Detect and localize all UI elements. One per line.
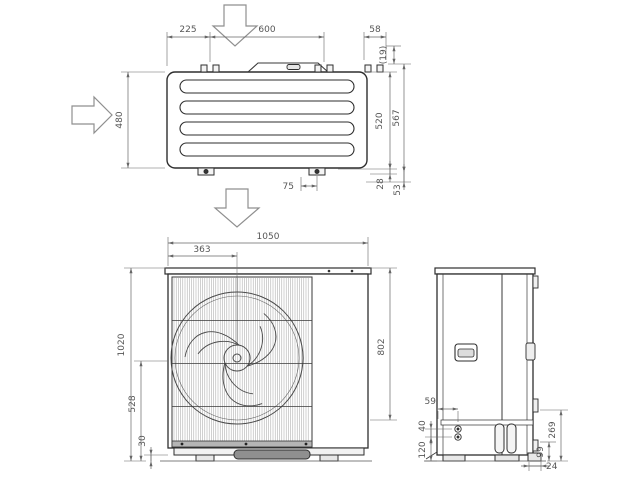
- dim-arrowhead-icon: [388, 415, 391, 420]
- dim-arrowhead-icon: [126, 163, 129, 168]
- cap-bolt: [328, 270, 331, 273]
- side-right-tabs: [533, 276, 538, 451]
- dim-foot-pitch-value: 600: [258, 25, 275, 35]
- dim-bottom-clearance-value: 120: [418, 441, 428, 458]
- dim-fan-center-value: 363: [193, 245, 210, 255]
- dim-arrowhead-icon: [364, 35, 369, 38]
- dim-foot-slot: 75: [283, 182, 317, 192]
- front-foot-left: [196, 455, 214, 461]
- dim-arrowhead-icon: [547, 456, 550, 461]
- dim-pipe-pitch-value: 40: [418, 420, 428, 432]
- dim-depth: 480: [115, 72, 130, 168]
- dim-arrowhead-icon: [232, 254, 237, 257]
- dim-depth-to-foot: 520: [375, 72, 392, 169]
- dim-bracket-width: 58: [364, 25, 386, 39]
- dim-width: 1050: [168, 232, 368, 245]
- airflow-down-arrow-top-icon: [213, 5, 257, 46]
- band-bolt: [305, 443, 308, 446]
- side-service-band: [441, 420, 533, 425]
- top-handle-detail: [287, 65, 300, 70]
- dim-valve-height-value: 269: [548, 421, 558, 438]
- side-view: [424, 268, 546, 461]
- airflow-right-arrow-icon: [72, 97, 112, 133]
- top-bottom-feet: [198, 168, 325, 175]
- dim-valve-height: 269: [548, 410, 563, 461]
- dim-arrowhead-icon: [402, 64, 405, 69]
- drawing-svg: 22560058(19)4805205672853751050363102052…: [0, 0, 640, 480]
- dim-rear-offset-value: (19): [379, 46, 389, 64]
- dim-arrowhead-icon: [205, 35, 210, 38]
- dim-arrowhead-icon: [167, 35, 172, 38]
- dim-foot-height-front: 30: [138, 435, 153, 469]
- dim-panel-height-value: 802: [377, 338, 387, 355]
- dim-arrowhead-icon: [312, 184, 317, 187]
- dim-arrowhead-icon: [139, 456, 142, 461]
- airflow-down-arrow-bottom-icon: [215, 189, 259, 227]
- dim-height: 1020: [117, 268, 133, 461]
- dim-depth-overall: 567: [392, 64, 406, 172]
- dim-foot-inset: 24: [521, 462, 558, 472]
- dim-arrowhead-icon: [429, 438, 432, 443]
- dim-foot-inset-value: 24: [546, 462, 558, 472]
- dim-arrowhead-icon: [129, 456, 132, 461]
- side-strip-handle: [526, 343, 535, 360]
- dim-arrowhead-icon: [392, 59, 395, 64]
- dim-foot-left: 225: [167, 25, 210, 39]
- dim-height-value: 1020: [117, 333, 127, 356]
- band-bolt: [245, 443, 248, 446]
- dim-arrowhead-icon: [388, 72, 391, 77]
- dim-arrowhead-icon: [301, 184, 306, 187]
- side-body: [437, 274, 533, 455]
- top-view: [167, 63, 383, 175]
- front-foot-right: [320, 455, 338, 461]
- dim-width-value: 1050: [257, 232, 280, 242]
- dim-arrowhead-icon: [168, 254, 173, 257]
- dim-arrowhead-icon: [392, 46, 395, 51]
- front-top-cap: [165, 268, 371, 274]
- dim-foot-height-front-value: 30: [138, 435, 148, 447]
- dim-arrowhead-icon: [129, 268, 132, 273]
- grille-bottom-band: [172, 441, 312, 447]
- dim-fan-center: 363: [168, 245, 237, 258]
- dim-rear-offset: (19): [379, 46, 396, 64]
- side-handle-inner: [458, 349, 474, 357]
- dim-overall-drop-value: 53: [393, 184, 403, 195]
- dim-foot-left-value: 225: [179, 25, 196, 35]
- dim-arrowhead-icon: [429, 456, 432, 461]
- dim-pipe-offset-value: 59: [425, 397, 437, 407]
- dimension-drawing: 22560058(19)4805205672853751050363102052…: [0, 0, 640, 480]
- dim-arrowhead-icon: [139, 361, 142, 366]
- dim-foot-slot-value: 75: [283, 182, 294, 192]
- band-bolt: [181, 443, 184, 446]
- dim-depth-to-foot-value: 520: [375, 112, 385, 129]
- dim-depth-value: 480: [115, 111, 125, 128]
- dim-foot-height-top: 28: [376, 161, 392, 190]
- dim-foot-height-top-value: 28: [376, 178, 386, 190]
- dim-drain-height-value: 99: [536, 446, 546, 458]
- dim-bracket-width-value: 58: [369, 25, 381, 35]
- side-top-cap: [435, 268, 535, 274]
- dim-pipe-height-value: 528: [128, 395, 138, 412]
- dim-panel-height: 802: [377, 268, 392, 420]
- dim-depth-overall-value: 567: [392, 109, 402, 126]
- dim-arrowhead-icon: [168, 241, 173, 244]
- dim-arrowhead-icon: [559, 410, 562, 415]
- dim-arrowhead-icon: [319, 35, 324, 38]
- cap-bolt: [351, 270, 354, 273]
- dim-bottom-clearance: 120: [418, 438, 433, 461]
- dim-arrowhead-icon: [363, 241, 368, 244]
- dim-arrowhead-icon: [388, 268, 391, 273]
- front-view: [160, 252, 372, 461]
- dim-arrowhead-icon: [381, 35, 386, 38]
- dim-arrowhead-icon: [547, 442, 550, 447]
- dim-arrowhead-icon: [559, 456, 562, 461]
- dim-arrowhead-icon: [210, 35, 215, 38]
- dim-arrowhead-icon: [126, 72, 129, 77]
- front-drain-pan: [234, 450, 310, 459]
